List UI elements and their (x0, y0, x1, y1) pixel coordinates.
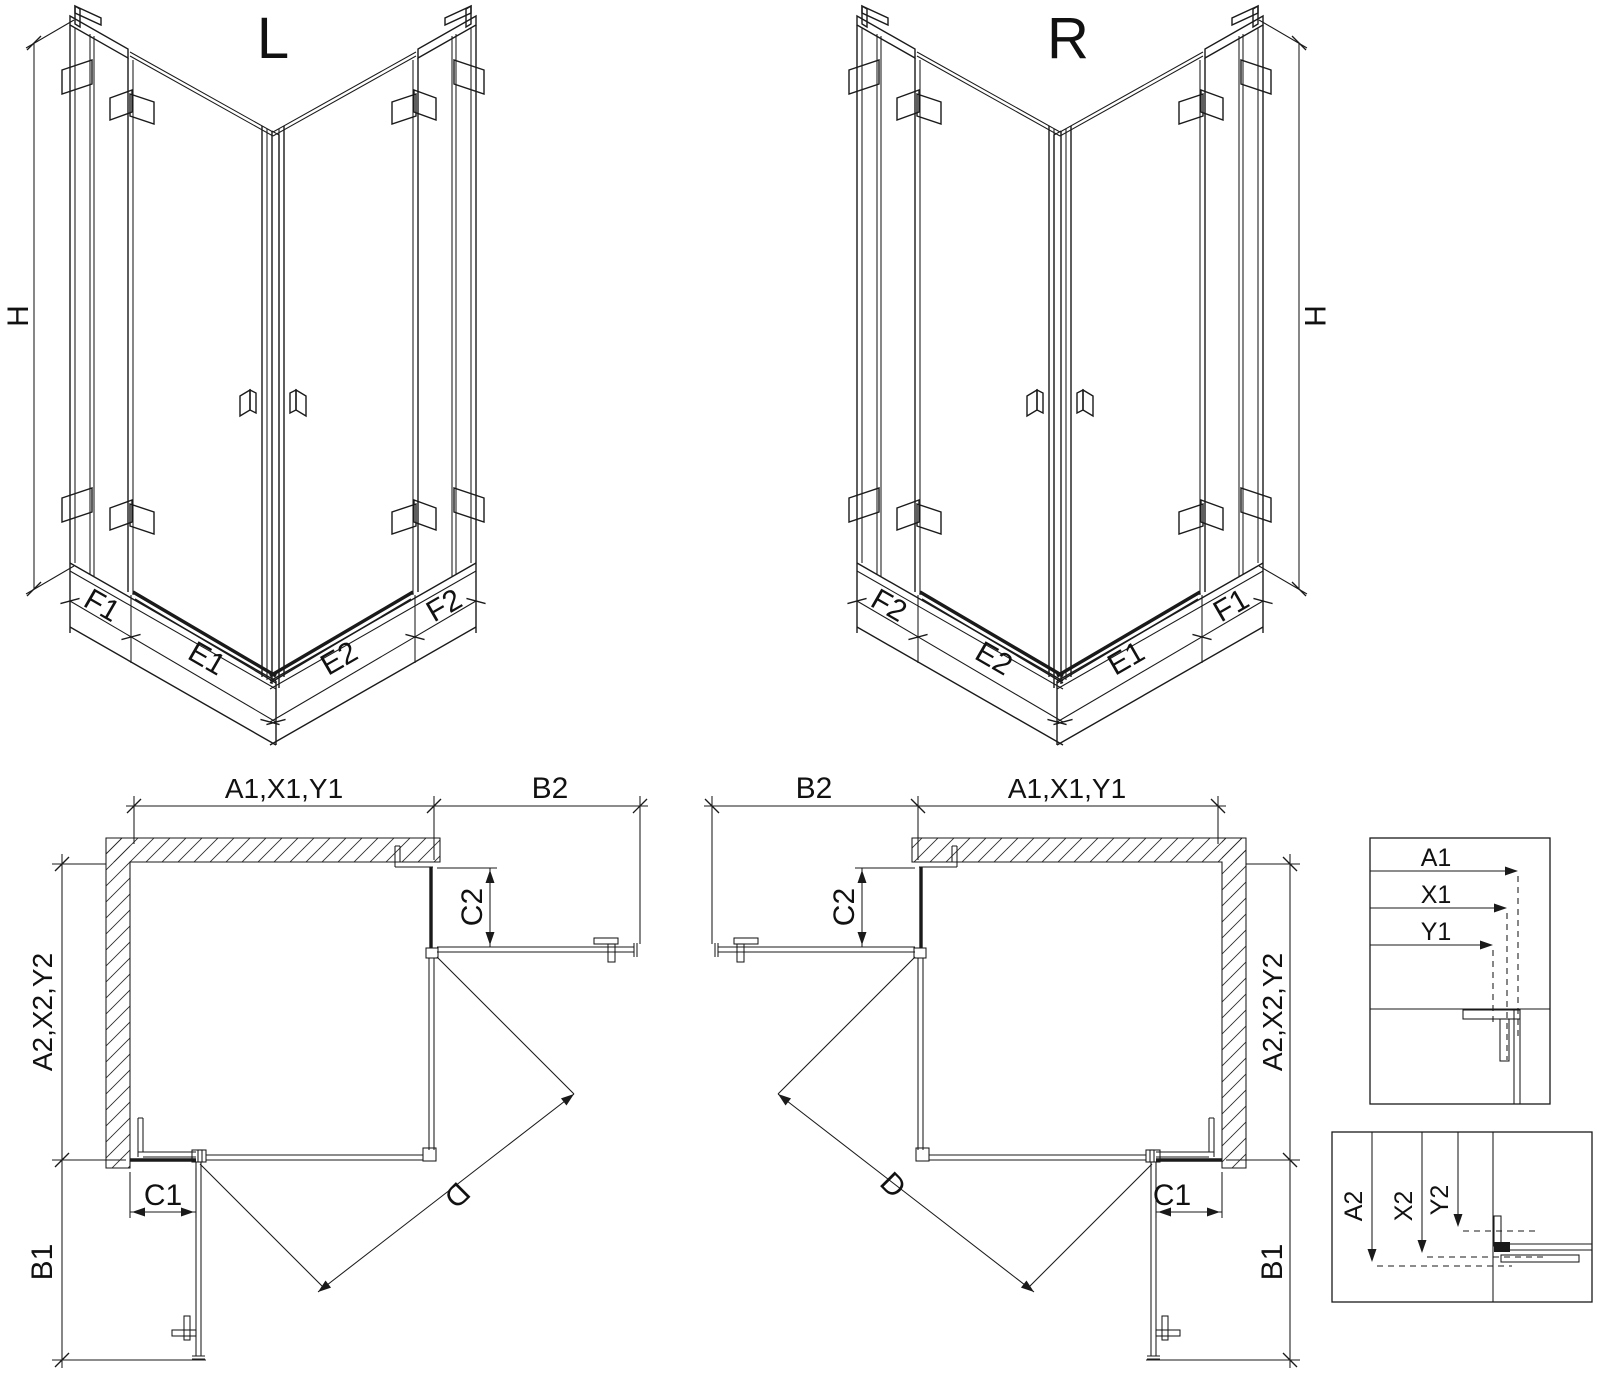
detail-label-y2: Y2 (1426, 1185, 1454, 1216)
dim-label-a2-right-plan: A2,X2,Y2 (1257, 953, 1288, 1071)
detail-inset-top: A1 X1 Y1 (1370, 838, 1550, 1104)
wall-hatch-side-right-plan (1222, 838, 1246, 1168)
dim-label-b2-right-plan: B2 (796, 772, 833, 805)
dim-label-h-right: H (1298, 305, 1331, 327)
iso-view-right: R H F2 E2 E1 F1 (847, 6, 1331, 745)
detail-label-a2: A2 (1340, 1191, 1368, 1222)
dim-label-h-left: H (2, 305, 35, 327)
wall-hatch-top-left-plan (106, 838, 440, 862)
shower-enclosure-diagram: L H F1 E1 E2 F2 R H F2 E2 E1 F1 A1,X1,Y1… (0, 0, 1600, 1373)
dim-label-f1-right: F1 (1208, 583, 1255, 629)
detail-inset-bottom: A2 X2 Y2 (1332, 1132, 1592, 1302)
dim-label-e1-right: E1 (1102, 635, 1150, 682)
view-title-right: R (1047, 6, 1089, 71)
plan-view-right: A1,X1,Y1 B2 C2 A2,X2,Y2 C1 B1 D (704, 772, 1300, 1368)
dim-label-c1-left-plan: C1 (144, 1179, 182, 1212)
view-title-left: L (257, 6, 289, 71)
wall-hatch-side-left-plan (106, 838, 130, 1168)
dim-label-b1-left-plan: B1 (26, 1244, 59, 1281)
dim-label-f1-left: F1 (78, 583, 125, 629)
detail-label-y1: Y1 (1421, 918, 1452, 946)
dim-label-e1-left: E1 (183, 635, 231, 682)
dim-label-d-left-plan: D (437, 1175, 476, 1214)
dim-label-c2-left-plan: C2 (456, 888, 489, 926)
detail-label-x1: X1 (1421, 881, 1452, 909)
dim-label-b1-right-plan: B1 (1256, 1244, 1289, 1281)
dim-label-f2-left: F2 (421, 583, 468, 629)
dim-label-e2-right: E2 (970, 635, 1018, 682)
dim-label-b2-left-plan: B2 (532, 772, 569, 805)
dim-label-a1-right-plan: A1,X1,Y1 (1008, 773, 1126, 804)
wall-hatch-top-right-plan (912, 838, 1246, 862)
detail-label-x2: X2 (1390, 1191, 1418, 1222)
iso-view-left: L H F1 E1 E2 F2 (2, 6, 486, 745)
detail-label-a1: A1 (1421, 844, 1452, 872)
dim-label-f2-right: F2 (865, 583, 912, 629)
plan-view-left: A1,X1,Y1 B2 C2 A2,X2,Y2 C1 B1 D (26, 772, 648, 1368)
dim-label-a2-left-plan: A2,X2,Y2 (27, 953, 58, 1071)
dim-label-c2-right-plan: C2 (828, 888, 861, 926)
dim-label-e2-left: E2 (315, 635, 363, 682)
dim-label-c1-right-plan: C1 (1153, 1179, 1191, 1212)
dim-label-a1-left-plan: A1,X1,Y1 (225, 773, 343, 804)
technical-drawing-page: L H F1 E1 E2 F2 R H F2 E2 E1 F1 A1,X1,Y1… (0, 0, 1600, 1373)
